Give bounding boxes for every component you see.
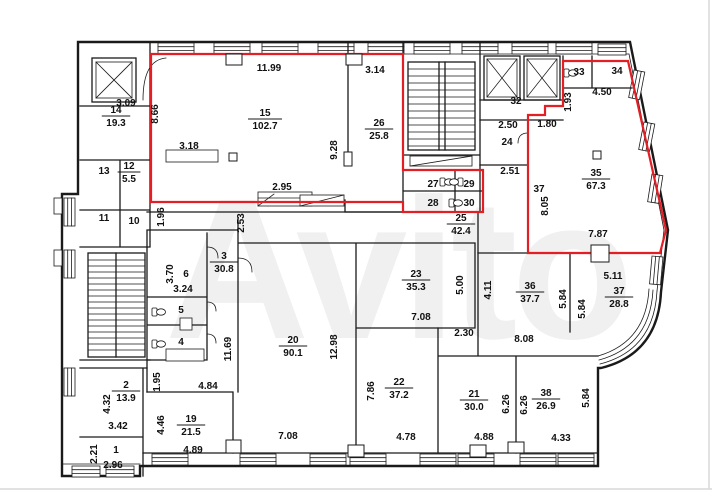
dimension-label: 7.86 — [366, 381, 377, 401]
svg-text:28: 28 — [427, 198, 439, 209]
svg-text:24: 24 — [501, 137, 513, 148]
elevators-north — [484, 56, 560, 100]
dimension-label: 4.33 — [551, 433, 571, 444]
svg-text:2: 2 — [123, 380, 129, 391]
svg-text:19: 19 — [185, 414, 197, 425]
dimension-label: 6.26 — [501, 394, 512, 414]
dimension-label: 5.11 — [604, 271, 623, 282]
dimension-label: 2.30 — [454, 328, 474, 339]
dimension-label: 2.51 — [500, 166, 520, 177]
dimension-label: 4.32 — [102, 394, 113, 414]
svg-text:13: 13 — [98, 166, 110, 177]
dimension-label: 1.80 — [537, 119, 557, 130]
room-label: 4 — [178, 337, 184, 348]
elevator-west — [92, 58, 166, 102]
svg-text:23: 23 — [410, 269, 422, 280]
svg-text:32: 32 — [510, 96, 522, 107]
svg-text:26: 26 — [373, 118, 385, 129]
room-label: 15102.7 — [248, 108, 282, 132]
dimension-label: 11.69 — [223, 336, 234, 361]
dimension-label: 4.50 — [592, 87, 612, 98]
room-label: 2130.0 — [460, 389, 488, 413]
dimension-label: 3.24 — [173, 284, 193, 295]
svg-text:30: 30 — [463, 198, 475, 209]
svg-text:21: 21 — [468, 389, 480, 400]
svg-text:28.8: 28.8 — [609, 299, 629, 310]
room-label: 125.5 — [118, 161, 141, 185]
svg-text:37: 37 — [533, 184, 545, 195]
svg-text:34: 34 — [611, 66, 623, 77]
dimension-label: 2.95 — [272, 182, 292, 193]
room-label: 2625.8 — [365, 118, 393, 142]
svg-text:37: 37 — [613, 286, 625, 297]
room-label: 10 — [128, 216, 140, 227]
svg-text:29: 29 — [463, 179, 475, 190]
svg-text:37.7: 37.7 — [520, 294, 540, 305]
dimension-label: 12.98 — [329, 334, 340, 359]
svg-text:15: 15 — [259, 108, 271, 119]
svg-text:5: 5 — [178, 305, 184, 316]
svg-text:13.9: 13.9 — [116, 393, 136, 404]
dimension-label: 1.96 — [156, 207, 167, 227]
svg-text:33: 33 — [573, 67, 585, 78]
svg-text:90.1: 90.1 — [283, 348, 303, 359]
svg-text:11: 11 — [99, 213, 110, 224]
svg-text:37.2: 37.2 — [389, 390, 409, 401]
svg-text:30.0: 30.0 — [464, 402, 484, 413]
dimension-label: 1.93 — [563, 92, 574, 112]
room-label: 213.9 — [112, 380, 140, 404]
dimension-label: 3.09 — [116, 98, 136, 109]
svg-text:25.8: 25.8 — [369, 131, 389, 142]
svg-text:19.3: 19.3 — [106, 118, 126, 129]
svg-text:26.9: 26.9 — [536, 401, 556, 412]
room-label: 32 — [510, 96, 522, 107]
room-label: 5 — [178, 305, 184, 316]
svg-text:6: 6 — [183, 269, 189, 280]
svg-text:20: 20 — [287, 335, 299, 346]
room-label: 33 — [573, 67, 585, 78]
room-label: 34 — [611, 66, 623, 77]
floor-plan: Avito — [0, 0, 720, 502]
dimension-label: 8.05 — [540, 196, 551, 216]
dimension-label: 3.18 — [179, 141, 199, 152]
dimension-label: 7.08 — [411, 312, 431, 323]
svg-text:21.5: 21.5 — [181, 427, 201, 438]
dimension-label: 3.14 — [365, 65, 385, 76]
dimension-label: 2.50 — [498, 120, 518, 131]
avito-watermark: Avito — [165, 158, 628, 381]
dimension-label: 7.08 — [278, 431, 298, 442]
svg-text:12: 12 — [123, 161, 135, 172]
stairs-west — [88, 253, 145, 357]
svg-text:67.3: 67.3 — [586, 181, 606, 192]
svg-text:30.8: 30.8 — [214, 264, 234, 275]
dimension-label: 9.28 — [329, 140, 340, 160]
dimension-label: 4.88 — [474, 432, 494, 443]
dimension-label: 11.99 — [257, 63, 282, 74]
svg-text:3: 3 — [221, 251, 227, 262]
dimension-label: 2.53 — [236, 213, 247, 233]
room-label: 29 — [463, 179, 475, 190]
room-label: 37 — [533, 184, 545, 195]
svg-text:35: 35 — [590, 168, 602, 179]
dimension-label: 8.66 — [150, 104, 161, 124]
dimension-label: 4.84 — [198, 381, 218, 392]
svg-text:5.5: 5.5 — [122, 174, 136, 185]
room-label: 24 — [501, 137, 513, 148]
svg-text:36: 36 — [524, 281, 536, 292]
dimension-label: 5.84 — [558, 289, 569, 309]
room-label: 1 — [113, 445, 119, 456]
dimension-label: 4.89 — [183, 445, 203, 456]
svg-text:35.3: 35.3 — [406, 282, 426, 293]
svg-text:27: 27 — [427, 179, 439, 190]
dimension-label: 5.84 — [581, 388, 592, 408]
dimension-label: 4.11 — [483, 280, 494, 299]
svg-text:38: 38 — [540, 388, 552, 399]
dimension-label: 4.78 — [396, 432, 416, 443]
dimension-label: 2.21 — [89, 444, 100, 464]
svg-text:4: 4 — [178, 337, 184, 348]
dimension-label: 5.84 — [577, 299, 588, 319]
dimension-label: 6.26 — [519, 395, 530, 415]
stairs-center — [408, 62, 475, 166]
room-label: 6 — [183, 269, 189, 280]
dimension-label: 3.42 — [108, 421, 128, 432]
dimension-label: 5.00 — [455, 275, 466, 295]
room-label: 28 — [427, 198, 439, 209]
dimension-label: 8.08 — [514, 334, 534, 345]
room-label: 27 — [427, 179, 439, 190]
dimension-label: 7.87 — [588, 229, 608, 240]
svg-text:1: 1 — [113, 445, 119, 456]
svg-text:42.4: 42.4 — [451, 226, 471, 237]
svg-text:102.7: 102.7 — [252, 121, 277, 132]
svg-text:10: 10 — [128, 216, 140, 227]
dimension-label: 1.95 — [152, 372, 163, 392]
svg-text:25: 25 — [455, 213, 467, 224]
dimension-label: 3.70 — [165, 264, 176, 284]
dimension-label: 2.96 — [103, 460, 123, 471]
dimension-label: 4.46 — [156, 415, 167, 435]
room-label: 30 — [463, 198, 475, 209]
room-label: 13 — [98, 166, 110, 177]
svg-text:22: 22 — [393, 377, 405, 388]
room-label: 1921.5 — [177, 414, 205, 438]
room-label: 11 — [99, 213, 110, 224]
room-label: 3826.9 — [532, 388, 560, 412]
